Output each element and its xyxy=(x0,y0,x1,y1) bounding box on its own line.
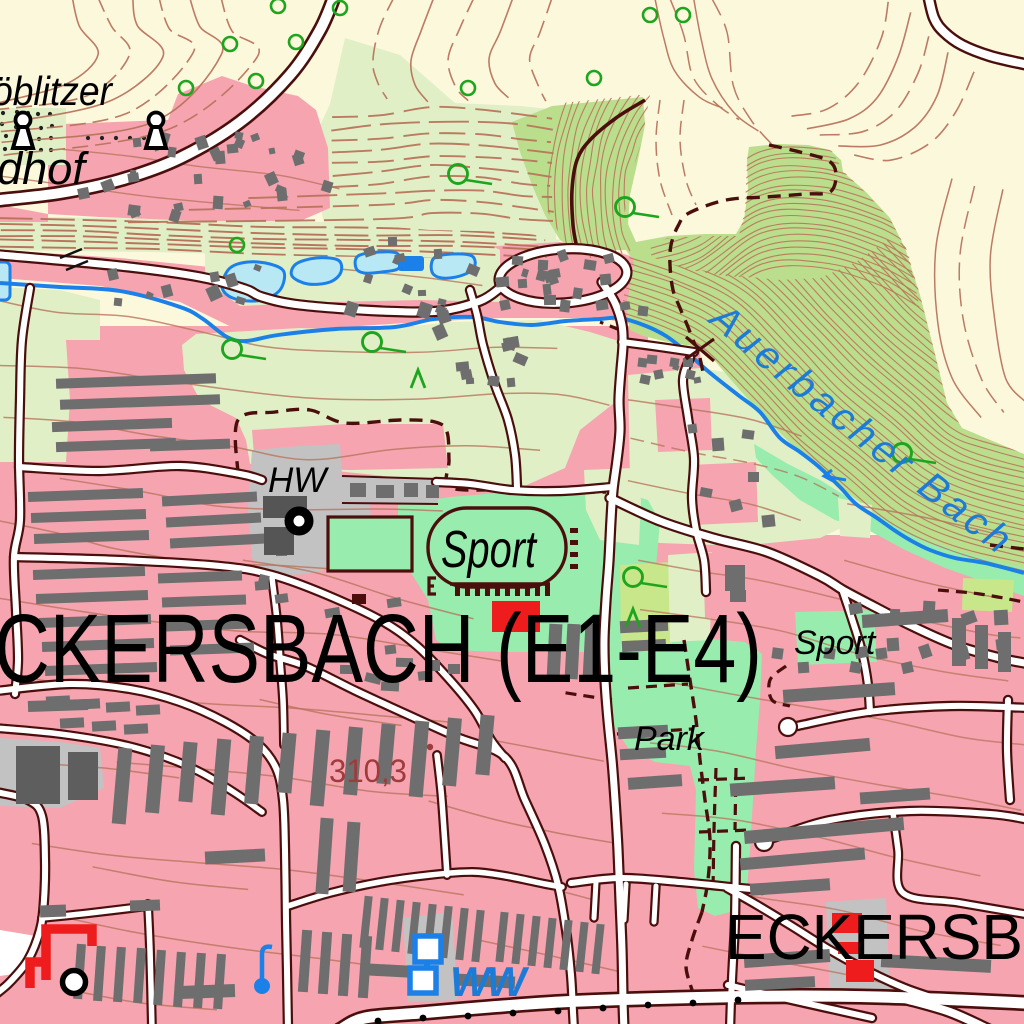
svg-text:Park: Park xyxy=(634,720,706,758)
svg-text:310,3: 310,3 xyxy=(329,753,407,789)
svg-text:Sport: Sport xyxy=(441,521,538,579)
svg-text:ECKERSB: ECKERSB xyxy=(725,901,1023,973)
svg-text:CKERSBACH (E1-E4): CKERSBACH (E1-E4) xyxy=(0,594,762,703)
svg-text:HW: HW xyxy=(268,461,329,500)
svg-text:Sport: Sport xyxy=(794,624,877,662)
svg-text:öblitzer: öblitzer xyxy=(0,68,114,114)
svg-text:dhof: dhof xyxy=(0,143,90,194)
svg-text:WW: WW xyxy=(450,958,530,1005)
